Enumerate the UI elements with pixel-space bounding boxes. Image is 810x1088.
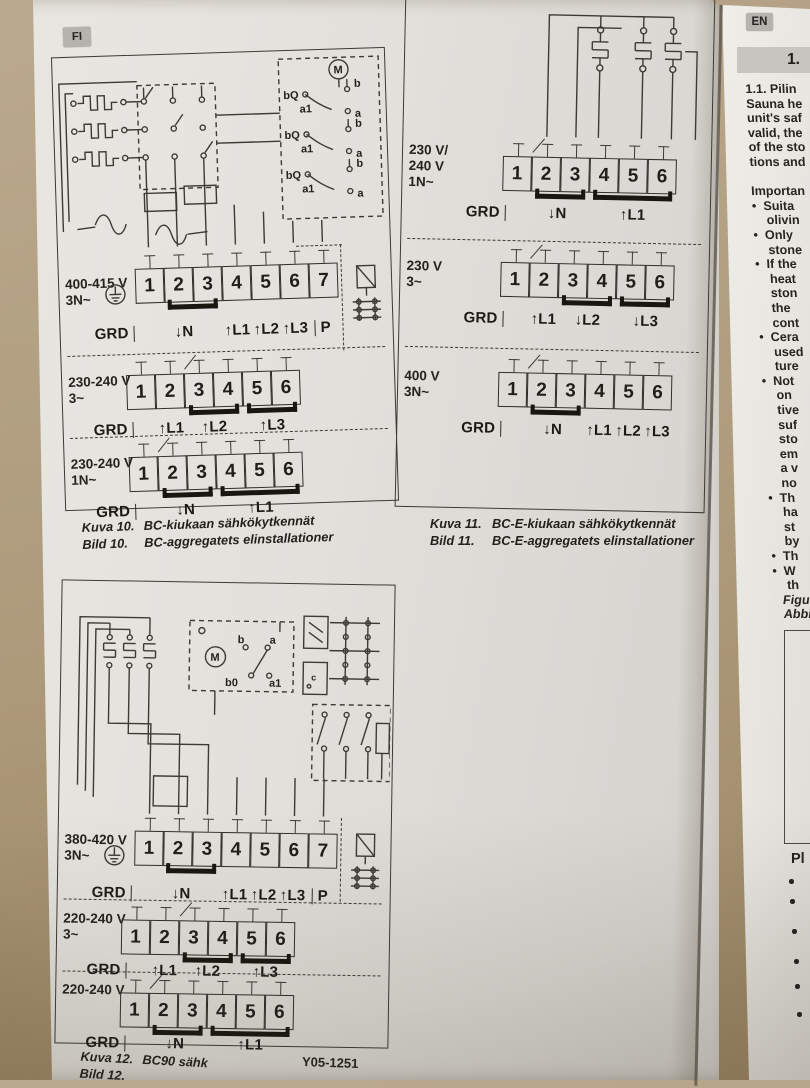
- figure-11-schematic: [407, 0, 710, 149]
- terminal: 6: [643, 375, 673, 411]
- terminal-block-230-240v-1n: 230 V/ 240 V 1N~ 1 2 3 4 5 6 GRD ↓N ↑L1: [401, 140, 711, 246]
- svg-text:a1: a1: [269, 678, 281, 690]
- svg-text:b0: b0: [225, 677, 238, 689]
- terminal: 4: [213, 372, 243, 408]
- relay-dash: [296, 244, 342, 246]
- p-label: P: [314, 319, 331, 337]
- figure-12-schematic: M b a b0 a1 c: [61, 582, 393, 822]
- l1-label: ↑L1: [224, 321, 250, 339]
- svg-text:b: b: [356, 158, 363, 170]
- en-figure-frame: [784, 630, 810, 844]
- terminal: 4: [221, 832, 251, 867]
- terminal: 3: [556, 373, 586, 409]
- terminal: 2: [150, 920, 180, 955]
- ground-icon: [103, 281, 128, 313]
- terminal: 6: [645, 265, 675, 301]
- terminal-bridge: [168, 298, 218, 310]
- wire-slash: [180, 902, 193, 916]
- terminal: 4: [208, 921, 238, 956]
- bullet-dot: [792, 929, 797, 934]
- caption-figure-12: Kuva 12.BC90 sähk Bild 12.: [79, 1049, 208, 1088]
- terminal: 6: [266, 922, 296, 957]
- svg-text:bQ: bQ: [286, 170, 302, 182]
- svg-text:b: b: [238, 634, 245, 646]
- en-bottom-heading: Pl: [791, 851, 805, 867]
- terminal: 5: [244, 453, 274, 489]
- bullet-dot: [797, 1012, 802, 1017]
- terminal-block-400v-3n: 400 V 3N~ 1 2 3 4 5 6 GRD ↓N ↑L1 ↑L2 ↑L3: [397, 356, 707, 462]
- terminal-bridge: [166, 863, 216, 874]
- bullet-dot: [790, 899, 795, 904]
- terminal-row-220-240v-1n: 220-240 V 1 2 3 4 5 6 GRD ↓N ↑L1: [55, 975, 388, 1050]
- wire-slash: [184, 355, 196, 370]
- section-number: 1.: [787, 51, 800, 69]
- terminal: 6: [273, 452, 303, 488]
- terminal-bridge: [221, 484, 300, 496]
- terminal: 4: [222, 265, 252, 301]
- section-header-bar: 1.: [737, 47, 810, 73]
- terminal: 6: [279, 833, 309, 868]
- terminal: 5: [618, 158, 648, 194]
- svg-text:a1: a1: [301, 143, 314, 155]
- wire-slash: [150, 975, 163, 989]
- terminal-bridge: [562, 295, 612, 306]
- terminal: 4: [587, 264, 617, 300]
- figure-12-frame: M b a b0 a1 c 380-420 V 3N~ 1 2 3 4 5 6 …: [54, 579, 395, 1048]
- svg-text:bQ: bQ: [283, 90, 299, 102]
- terminal: 1: [498, 372, 528, 408]
- terminal: 1: [126, 374, 156, 410]
- document-code: Y05-1251: [302, 1054, 359, 1071]
- en-figure-caption: Figur: [774, 593, 810, 608]
- relay-dash: [340, 244, 344, 350]
- terminal: 6: [265, 995, 295, 1030]
- terminal: 3: [193, 266, 223, 302]
- motor-label: M: [210, 652, 219, 664]
- terminal: 6: [280, 263, 310, 299]
- bullet-dot: [789, 879, 794, 884]
- terminal: 1: [120, 992, 150, 1027]
- terminal: 6: [271, 370, 301, 406]
- terminal: 3: [187, 454, 217, 490]
- terminal: 2: [149, 993, 179, 1028]
- terminal: 2: [155, 373, 185, 409]
- terminal: 4: [207, 994, 237, 1029]
- terminal: 3: [179, 920, 209, 955]
- wire-slash: [158, 438, 170, 453]
- svg-text:b: b: [355, 118, 362, 130]
- terminal: 1: [121, 919, 151, 954]
- terminal-row-230-240v-1n: 230-240 V 1N~ 1 2 3 4 5 6 GRD ↓N ↑L1: [64, 433, 398, 523]
- ground-icon: [102, 842, 126, 873]
- terminal: 3: [178, 993, 208, 1028]
- caption-figure-11: Kuva 11.BC-E-kiukaan sähkökytkennät Bild…: [430, 516, 694, 549]
- terminal-bridge: [620, 296, 670, 307]
- terminal: 7: [308, 833, 338, 868]
- en-figure-caption: Abbi: [774, 607, 810, 622]
- terminal: 5: [614, 374, 644, 410]
- terminal-bridge: [593, 190, 672, 202]
- bullet-dot: [795, 984, 800, 989]
- terminal: 2: [529, 262, 559, 298]
- terminal: 5: [236, 994, 266, 1029]
- svg-text:a: a: [270, 635, 277, 647]
- terminal: 2: [158, 455, 188, 491]
- terminal: 3: [184, 372, 214, 408]
- terminal: 1: [135, 268, 165, 304]
- terminal: 3: [192, 831, 222, 866]
- terminal: 5: [242, 371, 272, 407]
- language-badge-fi: FI: [63, 27, 92, 48]
- terminal: 1: [134, 831, 164, 866]
- terminal-bridge: [211, 1026, 290, 1037]
- terminal: 2: [527, 372, 557, 408]
- terminal: 5: [250, 832, 280, 867]
- n-label: ↓N: [174, 323, 193, 341]
- terminal: 1: [502, 156, 532, 192]
- terminal-row-400-415v: 400-415 V 3N~ 1 2 3 4 5 6 7 GRD ↓N ↑L1 ↑…: [58, 241, 393, 363]
- terminal-bridge: [531, 405, 581, 416]
- svg-text:a1: a1: [300, 103, 313, 115]
- wire-slash: [530, 245, 543, 259]
- relay-icon: [349, 263, 385, 329]
- terminal-bridge: [241, 953, 291, 964]
- svg-text:a: a: [357, 188, 364, 200]
- relay-dash: [340, 818, 342, 902]
- terminal-bridge: [153, 1025, 203, 1036]
- l2-label: ↑L2: [253, 320, 279, 338]
- terminal-bridge: [189, 404, 239, 416]
- terminal: 2: [164, 267, 194, 303]
- terminal: 1: [129, 456, 159, 492]
- figure-10-schematic: M bQ b a a1 bQ b a a1 bQ b a a1: [54, 50, 388, 255]
- terminal: 5: [616, 264, 646, 300]
- terminal: 7: [309, 262, 339, 298]
- terminal-bridge: [163, 486, 213, 498]
- terminal: 3: [558, 263, 588, 299]
- figure-10-frame: M bQ b a a1 bQ b a a1 bQ b a a1 400-415 …: [51, 47, 399, 511]
- wire-slash: [528, 354, 541, 368]
- terminal: 2: [163, 831, 193, 866]
- terminal: 2: [531, 156, 561, 192]
- terminal-block-230v-3: 230 V 3~ 1 2 3 4 5 6 GRD ↑L1 ↓L2 ↓L3: [399, 246, 709, 352]
- bullet-dot: [794, 959, 799, 964]
- terminal: 4: [216, 453, 246, 489]
- svg-text:a1: a1: [302, 183, 315, 195]
- svg-text:bQ: bQ: [284, 130, 300, 142]
- motor-label: M: [333, 64, 343, 76]
- terminal: 5: [237, 921, 267, 956]
- terminal: 5: [251, 264, 281, 300]
- terminal-bridge: [183, 952, 233, 963]
- terminal-bridge: [247, 402, 297, 414]
- language-badge-en: EN: [746, 13, 773, 31]
- svg-text:b: b: [354, 78, 361, 90]
- svg-text:c: c: [311, 672, 316, 682]
- relay-icon: [348, 832, 383, 898]
- terminal: 3: [560, 157, 590, 193]
- l3-label: ↑L3: [282, 319, 308, 337]
- terminal: 1: [500, 262, 530, 298]
- terminal: 4: [589, 158, 619, 194]
- terminal: 6: [647, 159, 677, 195]
- grd-label: GRD: [94, 325, 134, 343]
- figure-11-frame: 230 V/ 240 V 1N~ 1 2 3 4 5 6 GRD ↓N ↑L1 …: [395, 0, 716, 513]
- terminal-row-230-240v-3: 230-240 V 3~ 1 2 3 4 5 6 GRD ↑L1 ↑L2 ↑L3: [62, 351, 396, 441]
- terminal: 4: [585, 374, 615, 410]
- terminal-bridge: [535, 189, 585, 200]
- terminal-row-220-240v-3: 220-240 V 3~ 1 2 3 4 5 6 GRD ↑L1 ↑L2 ↑L3: [56, 902, 389, 979]
